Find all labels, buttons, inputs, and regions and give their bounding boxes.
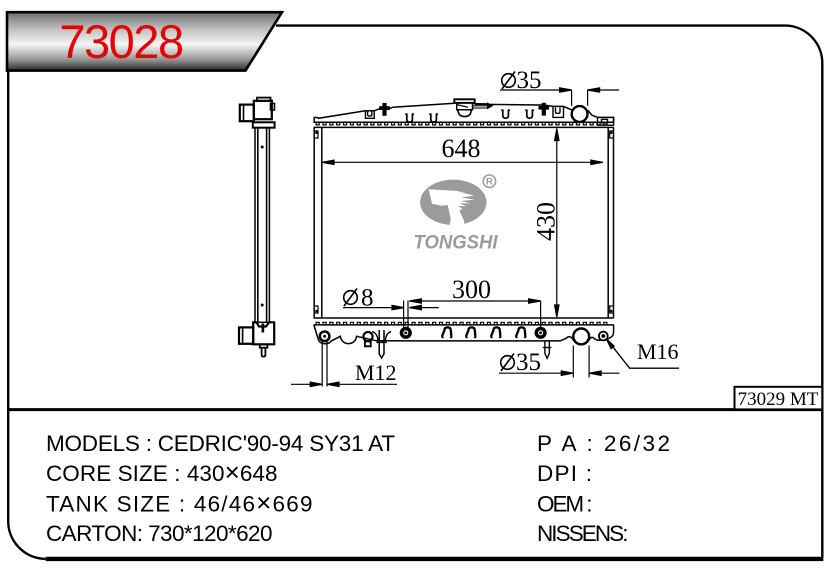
svg-text:TONGSHI: TONGSHI: [414, 232, 499, 254]
svg-text:DPI :: DPI :: [537, 461, 592, 486]
svg-text:NISSENS:: NISSENS:: [537, 521, 629, 546]
svg-text:P A : 26/32: P A : 26/32: [537, 431, 670, 456]
svg-text:MODELS : CEDRIC'90-94 SY31 AT: MODELS : CEDRIC'90-94 SY31 AT: [46, 431, 395, 456]
svg-text:TANK SIZE : 46/46×669: TANK SIZE : 46/46×669: [46, 488, 313, 518]
svg-text:430: 430: [532, 202, 561, 241]
svg-text:CARTON: 730*120*620: CARTON: 730*120*620: [46, 521, 273, 546]
svg-text:OEM :: OEM :: [537, 492, 593, 517]
svg-text:35: 35: [516, 349, 541, 376]
svg-text:73028: 73028: [59, 15, 183, 68]
svg-text:M16: M16: [637, 339, 679, 364]
svg-text:R: R: [486, 177, 493, 188]
svg-text:35: 35: [517, 67, 542, 94]
svg-text:648: 648: [442, 134, 481, 163]
svg-text:M12: M12: [355, 360, 397, 385]
svg-text:73029 MT: 73029 MT: [738, 389, 819, 410]
svg-text:CORE SIZE : 430×648: CORE SIZE : 430×648: [46, 457, 278, 487]
svg-text:8: 8: [361, 285, 374, 312]
svg-text:300: 300: [452, 275, 491, 304]
